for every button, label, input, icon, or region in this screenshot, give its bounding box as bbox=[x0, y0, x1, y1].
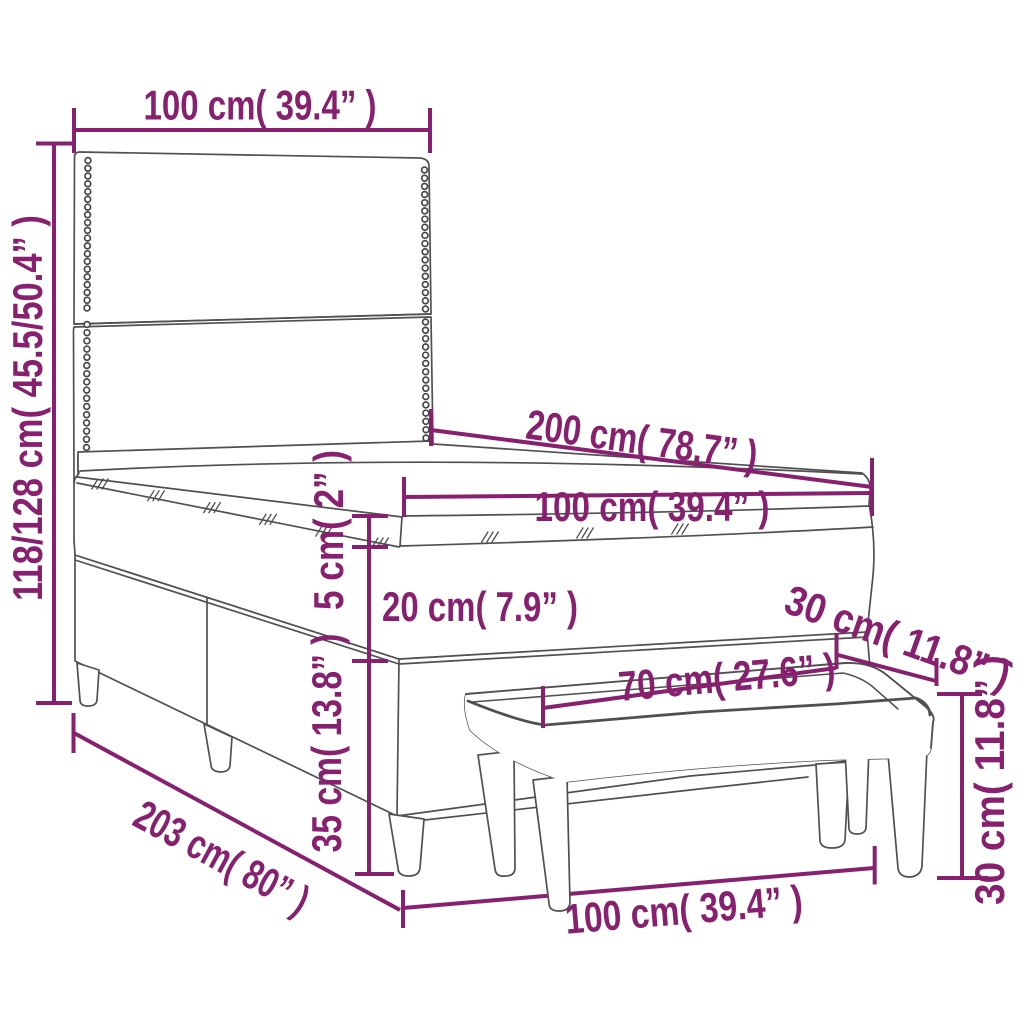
svg-text:30 cm( 11.8” ): 30 cm( 11.8” ) bbox=[966, 655, 1014, 905]
svg-text:100 cm( 39.4” ): 100 cm( 39.4” ) bbox=[144, 82, 377, 129]
svg-text:118/128 cm( 45.5/50.4” ): 118/128 cm( 45.5/50.4” ) bbox=[5, 215, 52, 601]
svg-text:5 cm( 2” ): 5 cm( 2” ) bbox=[306, 450, 353, 610]
svg-text:35 cm( 13.8” ): 35 cm( 13.8” ) bbox=[305, 634, 351, 853]
svg-text:20 cm( 7.9” ): 20 cm( 7.9” ) bbox=[382, 583, 578, 630]
svg-text:100 cm( 39.4” ): 100 cm( 39.4” ) bbox=[535, 483, 770, 530]
